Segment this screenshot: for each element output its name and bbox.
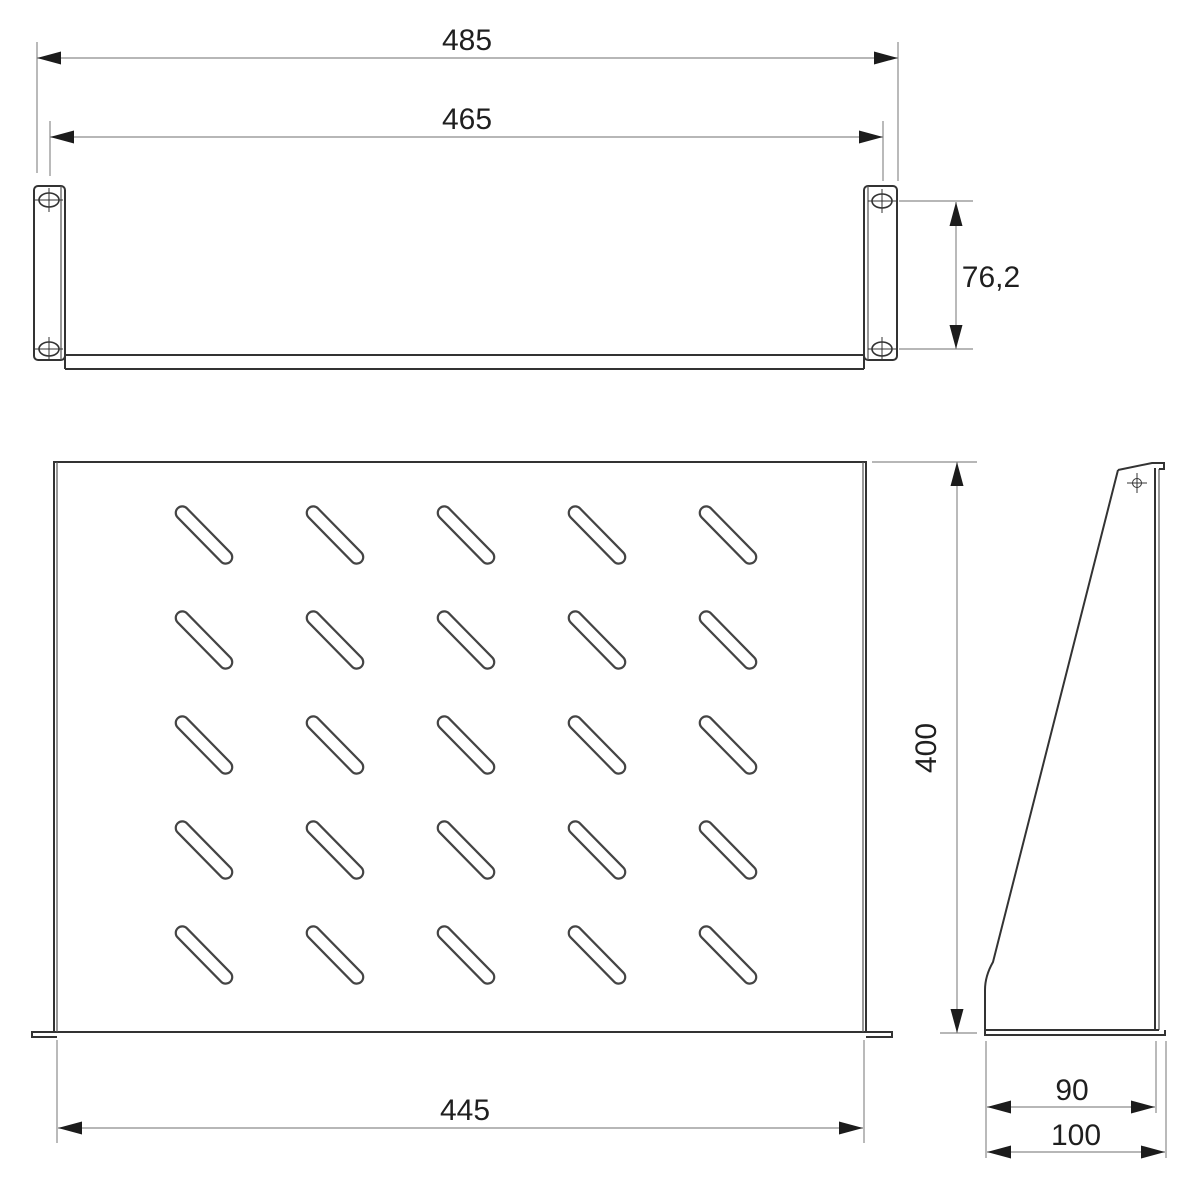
left-foot-flange (32, 1032, 57, 1037)
right-mounting-ear (864, 186, 897, 360)
dim-label-shelf-depth: 400 (910, 723, 943, 773)
arrow-right-icon (1131, 1101, 1155, 1114)
left-mounting-ear (34, 186, 65, 360)
top-lip (1118, 463, 1164, 470)
arrow-up-icon (950, 202, 963, 226)
front-view (34, 186, 897, 369)
arrow-right-icon (1141, 1146, 1165, 1159)
arrow-right-icon (859, 131, 883, 144)
front-panel-strip (65, 355, 864, 369)
arrow-left-icon (58, 1122, 82, 1135)
dimension-front-panel-height: 76,2 (899, 201, 1020, 349)
arrow-left-icon (987, 1146, 1011, 1159)
right-foot-flange (866, 1032, 892, 1037)
arrow-left-icon (50, 131, 74, 144)
dim-label-side-depth-overall: 100 (1051, 1119, 1101, 1152)
arrow-down-icon (950, 325, 963, 349)
dimension-front-hole-span: 465 (50, 103, 883, 181)
dimension-shelf-width: 445 (57, 1040, 864, 1143)
arrow-right-icon (839, 1122, 863, 1135)
dim-label-shelf-width: 445 (440, 1094, 490, 1127)
arrow-up-icon (951, 462, 964, 486)
arrow-left-icon (987, 1101, 1011, 1114)
technical-drawing-page: 485 465 76,2 445 400 (0, 0, 1200, 1200)
arrow-down-icon (951, 1009, 964, 1033)
dim-label-front-hole-span: 465 (442, 103, 492, 136)
dim-label-side-depth-face: 90 (1055, 1074, 1088, 1107)
dim-label-front-overall-width: 485 (442, 24, 492, 57)
drawing-canvas: 485 465 76,2 445 400 (0, 0, 1200, 1200)
dimension-shelf-depth: 400 (872, 462, 977, 1033)
dim-label-front-panel-height: 76,2 (962, 261, 1020, 294)
arrow-left-icon (37, 52, 61, 65)
gusset-slant-edge (985, 470, 1118, 1030)
side-view (985, 463, 1165, 1035)
center-mark-icon (1127, 473, 1147, 493)
arrow-right-icon (874, 52, 898, 65)
plan-view (32, 462, 892, 1037)
